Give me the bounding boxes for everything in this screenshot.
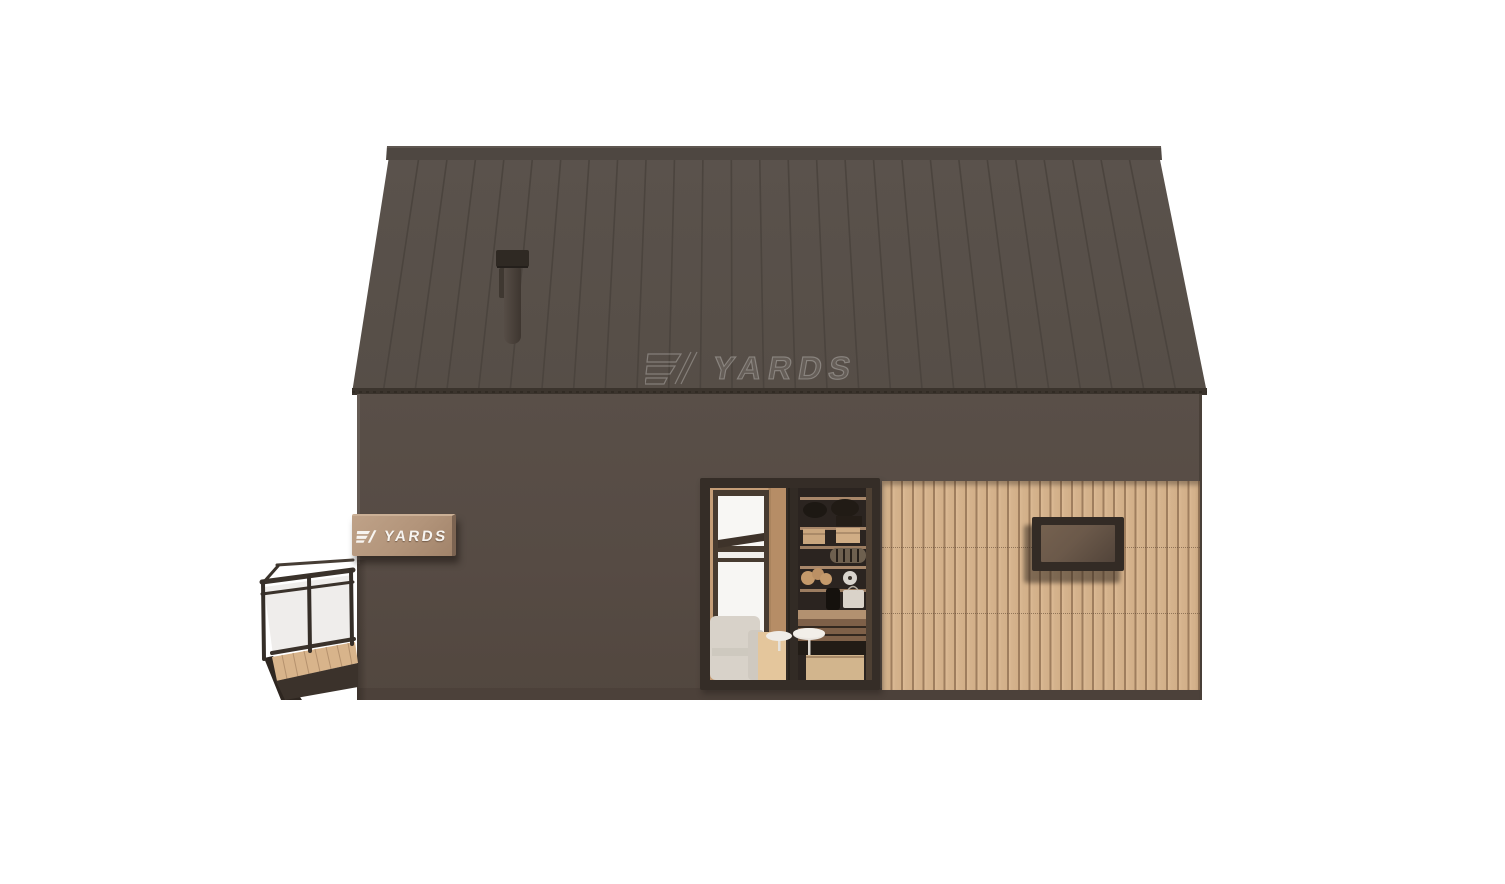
door-interior-view bbox=[710, 488, 872, 680]
roof-watermark: YARDS bbox=[645, 344, 905, 392]
small-window bbox=[1032, 517, 1124, 571]
door-mullion bbox=[786, 488, 798, 680]
yards-logo-icon bbox=[356, 529, 378, 544]
wood-cladding bbox=[882, 481, 1200, 690]
glass-door-unit bbox=[700, 478, 880, 690]
roof-ridge bbox=[386, 146, 1162, 160]
house-render: YARDS bbox=[0, 0, 1505, 884]
small-window-glass bbox=[1041, 525, 1115, 562]
watermark-label: YARDS bbox=[710, 350, 861, 387]
yards-logo-outline-icon bbox=[645, 350, 701, 386]
plaque-label: YARDS bbox=[383, 528, 449, 545]
chimney-cap bbox=[496, 250, 529, 267]
deck bbox=[250, 548, 380, 708]
cladding-joint bbox=[882, 613, 1200, 614]
interior-armchair bbox=[710, 616, 764, 680]
door-left-pane bbox=[710, 488, 786, 680]
